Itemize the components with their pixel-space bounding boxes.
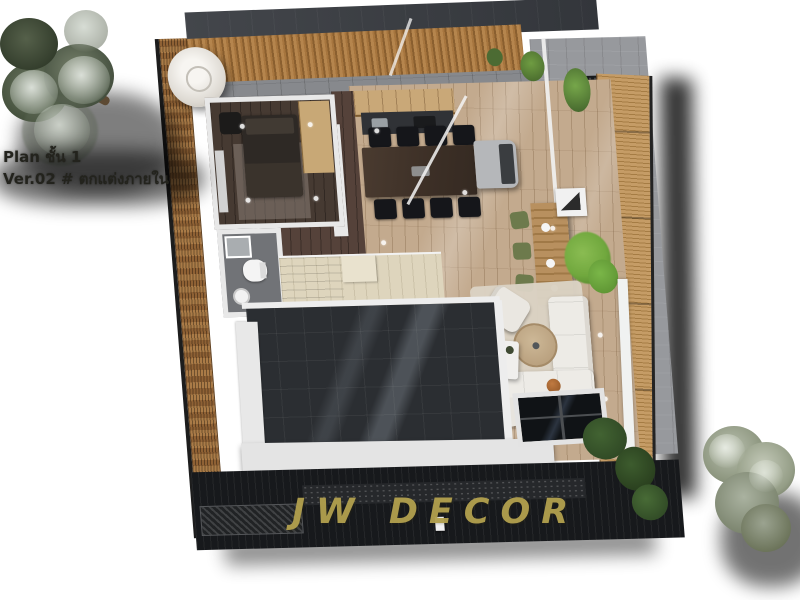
building-plan — [153, 8, 694, 540]
tree-foliage-frost — [64, 10, 108, 52]
table-decor — [532, 342, 540, 349]
dining-chair — [368, 127, 392, 148]
plate — [541, 223, 551, 232]
toilet — [242, 259, 268, 282]
floor-plan-render: Plan ชั้น 1 Ver.02 # ตกแต่งภายใน JW DECO… — [0, 0, 800, 600]
caption-line1: Plan ชั้น 1 — [3, 146, 169, 168]
shower — [224, 236, 252, 259]
tree-bottom-right — [695, 420, 800, 590]
downlight — [462, 190, 467, 195]
caption: Plan ชั้น 1 Ver.02 # ตกแต่งภายใน — [3, 146, 169, 190]
caption-line2: Ver.02 # ตกแต่งภายใน — [3, 168, 169, 190]
downlight — [313, 196, 318, 201]
bedroom-armchair — [219, 112, 243, 135]
stair-landing — [341, 255, 377, 282]
downlight — [374, 128, 379, 133]
plate — [546, 259, 556, 268]
dining-chair — [430, 197, 454, 218]
tree-foliage-light — [709, 434, 745, 468]
wardrobe — [298, 101, 335, 174]
bed-pillow — [245, 118, 294, 135]
tree-foliage-frost — [58, 56, 110, 104]
dining-chair — [396, 126, 420, 147]
bedroom — [204, 94, 344, 229]
tree-foliage-light — [749, 460, 783, 492]
tree-foliage — [741, 504, 791, 552]
dining-chair — [402, 198, 426, 219]
downlight — [598, 332, 603, 337]
dining-chair — [458, 197, 482, 218]
downlight — [381, 240, 386, 245]
dining-chair — [452, 125, 476, 146]
bedroom-desk — [215, 150, 229, 212]
watermark-text: JW DECOR — [292, 492, 579, 532]
downlight — [307, 122, 312, 127]
downlight — [550, 226, 555, 231]
green-stool — [509, 211, 530, 230]
niche-shadow — [559, 192, 580, 210]
toilet-tank — [259, 262, 266, 278]
dining-chair — [374, 199, 398, 220]
hatched-walkway — [199, 503, 303, 536]
tree-foliage-dark — [0, 18, 58, 70]
island-dark-top — [499, 144, 516, 184]
downlight — [240, 124, 245, 129]
dining-table — [362, 145, 478, 198]
downlight — [245, 198, 250, 203]
green-stool — [512, 242, 531, 259]
kitchen-island — [473, 140, 519, 189]
niche-shelf — [555, 188, 587, 217]
bed-blanket — [245, 162, 304, 197]
side-table-plant — [506, 346, 514, 355]
bed — [241, 114, 303, 197]
